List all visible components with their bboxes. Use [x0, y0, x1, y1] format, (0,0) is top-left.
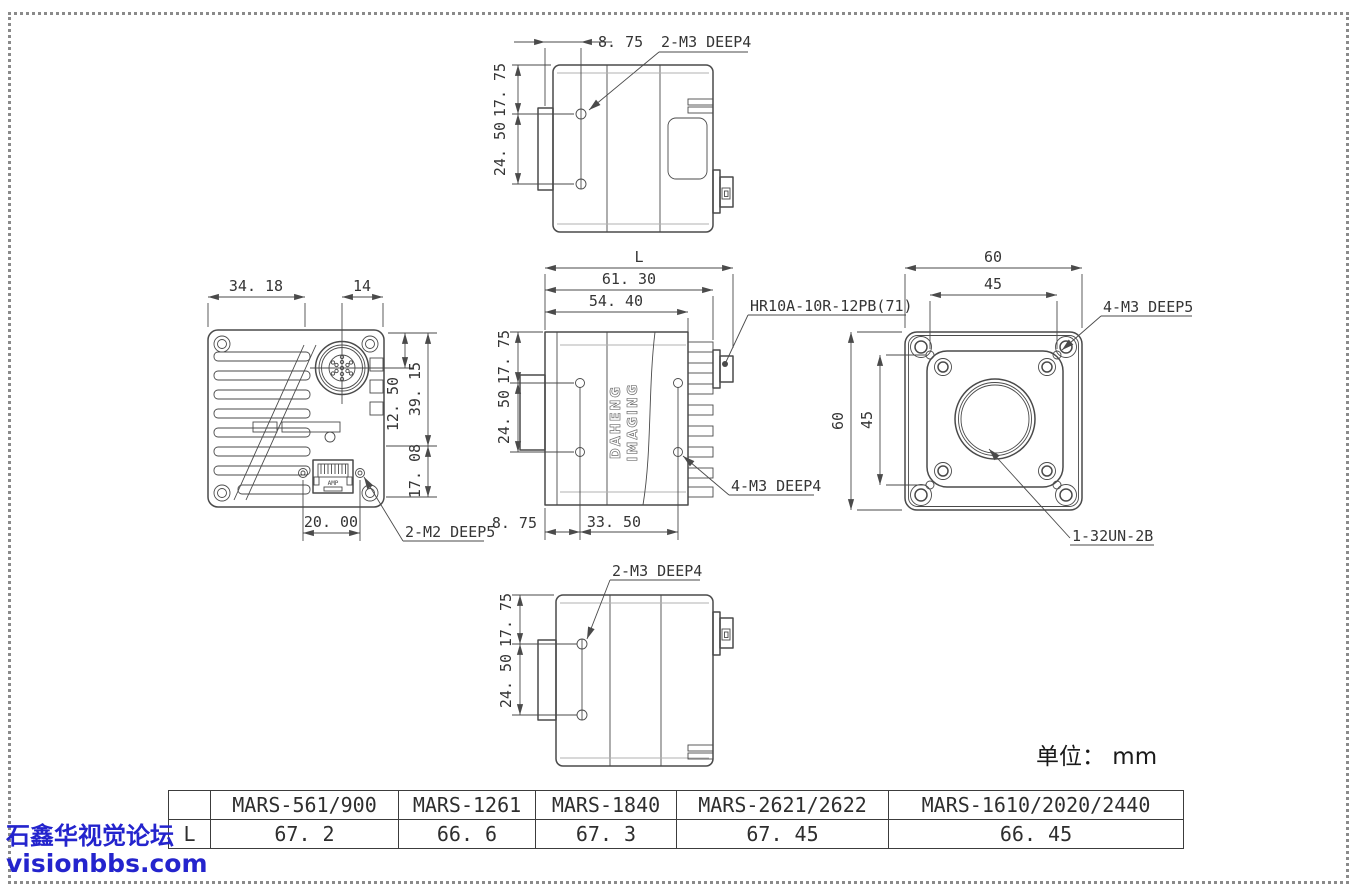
rj45-port: AMP	[313, 460, 353, 493]
units-note: 单位： mm	[1036, 737, 1157, 771]
bottom-body	[538, 595, 733, 766]
side-heatsink-fins	[688, 342, 713, 497]
table-header-mars-561-900: MARS-561/900	[211, 791, 399, 820]
table-value-row: L 67. 2 66. 6 67. 3 67. 45 66. 45	[169, 820, 1184, 849]
dim-front-height-inner: 45	[858, 411, 876, 429]
dim-side-len-outer: 61. 30	[602, 270, 656, 288]
side-holes-label: 4-M3 DEEP4	[731, 477, 821, 495]
table-header-mars-1261: MARS-1261	[399, 791, 536, 820]
dim-side-pitch-h: 33. 50	[587, 513, 641, 531]
dim-side-pitch-v1: 17. 75	[495, 330, 513, 384]
daheng-logo-line2: IMAGING	[626, 383, 641, 462]
watermark-forum-name: 石鑫华视觉论坛	[6, 824, 174, 849]
bottom-leader-label: 2-M3 DEEP4	[612, 562, 702, 580]
dim-back-height-upper: 39. 15	[406, 362, 424, 416]
dim-top-offset: 8. 75	[598, 33, 643, 51]
table-header-mars-2621-2622: MARS-2621/2622	[677, 791, 889, 820]
table-row-label: L	[169, 820, 211, 849]
front-mount-plate	[927, 351, 1063, 487]
dim-bottom-pitch2: 24. 50	[497, 654, 515, 708]
table-header-mars-1840: MARS-1840	[536, 791, 677, 820]
bottom-dimensions: 17. 75 24. 50	[497, 593, 577, 715]
watermark-site-url: visionbbs.com	[6, 851, 208, 877]
side-connector-leader: HR10A-10R-12PB(71)	[725, 297, 913, 364]
lens-mount-circle	[955, 379, 1035, 459]
dim-bottom-pitch1: 17. 75	[497, 593, 515, 647]
table-corner-cell	[169, 791, 211, 820]
front-plate-screws	[935, 359, 1056, 480]
dim-front-width-inner: 45	[984, 275, 1002, 293]
table-header-row: MARS-561/900 MARS-1261 MARS-1840 MARS-26…	[169, 791, 1184, 820]
dim-side-len-body: 54. 40	[589, 292, 643, 310]
side-connector-flange	[713, 350, 720, 388]
side-body: DAHENG IMAGING	[520, 332, 733, 505]
dim-top-pitch2: 24. 50	[491, 122, 509, 176]
side-tabs	[370, 358, 383, 415]
front-screws-label: 4-M3 DEEP5	[1103, 298, 1193, 316]
front-dimensions: 60 45 60 45	[829, 248, 1082, 510]
dim-front-width: 60	[984, 248, 1002, 266]
view-bottom-profile: 17. 75 24. 50 2-M3 DEEP4	[497, 562, 733, 766]
top-body	[538, 65, 733, 232]
view-top-profile: 8. 75 17. 75 24. 50 2-M3 DEEP4	[491, 33, 751, 232]
rj45-brand-label: AMP	[328, 480, 339, 487]
top-dimensions: 8. 75 17. 75 24. 50	[491, 33, 643, 189]
back-leader-label: 2-M2 DEEP5	[405, 523, 495, 541]
dim-back-width: 34. 18	[229, 277, 283, 295]
table-value-mars-1261: 66. 6	[399, 820, 536, 849]
front-body	[905, 332, 1082, 510]
dimension-table: MARS-561/900 MARS-1261 MARS-1840 MARS-26…	[168, 790, 1184, 849]
bottom-leader: 2-M3 DEEP4	[587, 562, 702, 639]
table-value-mars-1610-2020-2440: 66. 45	[889, 820, 1184, 849]
dim-top-pitch1: 17. 75	[491, 63, 509, 117]
dim-side-pitch-v2: 24. 50	[495, 390, 513, 444]
table-value-mars-2621-2622: 67. 45	[677, 820, 889, 849]
table-header-mars-1610-2020-2440: MARS-1610/2020/2440	[889, 791, 1184, 820]
dim-back-conn-offset: 14	[353, 277, 371, 295]
table-value-mars-1840: 67. 3	[536, 820, 677, 849]
dim-back-conn-center: 12. 50	[384, 377, 402, 431]
dim-side-offset: 8. 75	[492, 514, 537, 532]
table-value-mars-561-900: 67. 2	[211, 820, 399, 849]
daheng-logo-line1: DAHENG	[609, 385, 624, 459]
front-corner-screws	[911, 337, 1077, 506]
view-side: DAHENG IMAGING L 61. 30 54. 40 17. 75 24…	[492, 248, 913, 540]
dim-back-height-lower: 17. 08	[406, 444, 424, 498]
dim-back-rj45-pitch: 20. 00	[304, 513, 358, 531]
dim-front-height: 60	[829, 412, 847, 430]
dim-side-total: L	[634, 248, 643, 266]
view-back: AMP 34. 18 14 39. 15 12. 50 17. 08	[208, 277, 495, 541]
top-leader-label: 2-M3 DEEP4	[661, 33, 751, 51]
view-front: 60 45 60 45 4-M3 DEEP5 1-32UN-2B	[829, 248, 1193, 545]
side-connector-label: HR10A-10R-12PB(71)	[750, 297, 913, 315]
front-mount-label: 1-32UN-2B	[1072, 527, 1153, 545]
side-holes-leader: 4-M3 DEEP4	[683, 456, 821, 495]
